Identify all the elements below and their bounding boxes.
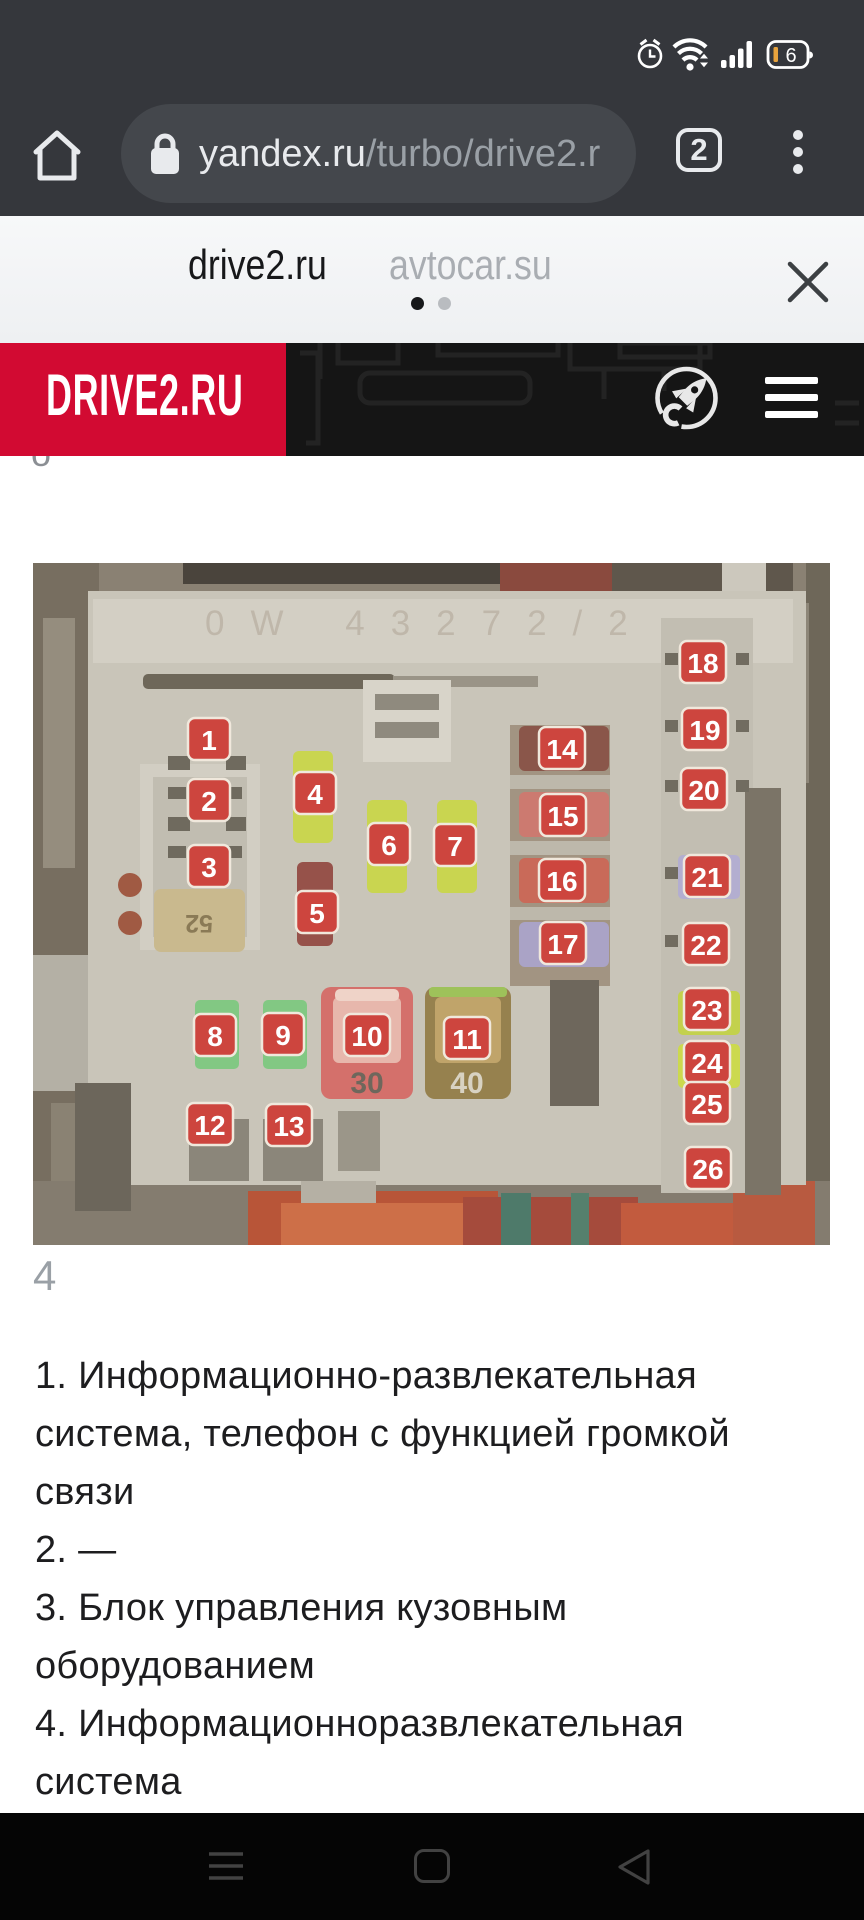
svg-text:13: 13: [273, 1111, 304, 1142]
svg-text:11: 11: [452, 1024, 482, 1055]
svg-text:22: 22: [690, 930, 721, 961]
svg-text:18: 18: [687, 648, 718, 679]
svg-text:19: 19: [689, 715, 720, 746]
svg-text:30: 30: [350, 1067, 383, 1100]
svg-text:20: 20: [688, 775, 719, 806]
svg-text:23: 23: [691, 995, 722, 1026]
svg-text:10: 10: [351, 1021, 382, 1052]
svg-text:2: 2: [201, 786, 217, 817]
svg-text:12: 12: [194, 1110, 225, 1141]
svg-text:15: 15: [547, 801, 578, 832]
svg-text:52: 52: [185, 909, 213, 937]
svg-text:6: 6: [785, 45, 796, 67]
svg-text:1: 1: [201, 725, 217, 756]
svg-text:16: 16: [546, 866, 577, 897]
svg-text:3: 3: [201, 852, 217, 883]
svg-text:9: 9: [275, 1020, 291, 1051]
svg-text:26: 26: [692, 1154, 723, 1185]
svg-text:21: 21: [691, 862, 722, 893]
svg-text:8: 8: [207, 1021, 223, 1052]
svg-text:0W 43272/2: 0W 43272/2: [205, 604, 654, 643]
svg-text:14: 14: [546, 734, 578, 765]
svg-text:7: 7: [447, 831, 463, 862]
svg-text:4: 4: [307, 779, 323, 810]
svg-text:6: 6: [381, 830, 397, 861]
svg-text:17: 17: [547, 929, 578, 960]
svg-text:24: 24: [691, 1048, 723, 1079]
svg-text:25: 25: [691, 1089, 722, 1120]
svg-text:5: 5: [309, 898, 325, 929]
svg-text:40: 40: [450, 1067, 483, 1100]
